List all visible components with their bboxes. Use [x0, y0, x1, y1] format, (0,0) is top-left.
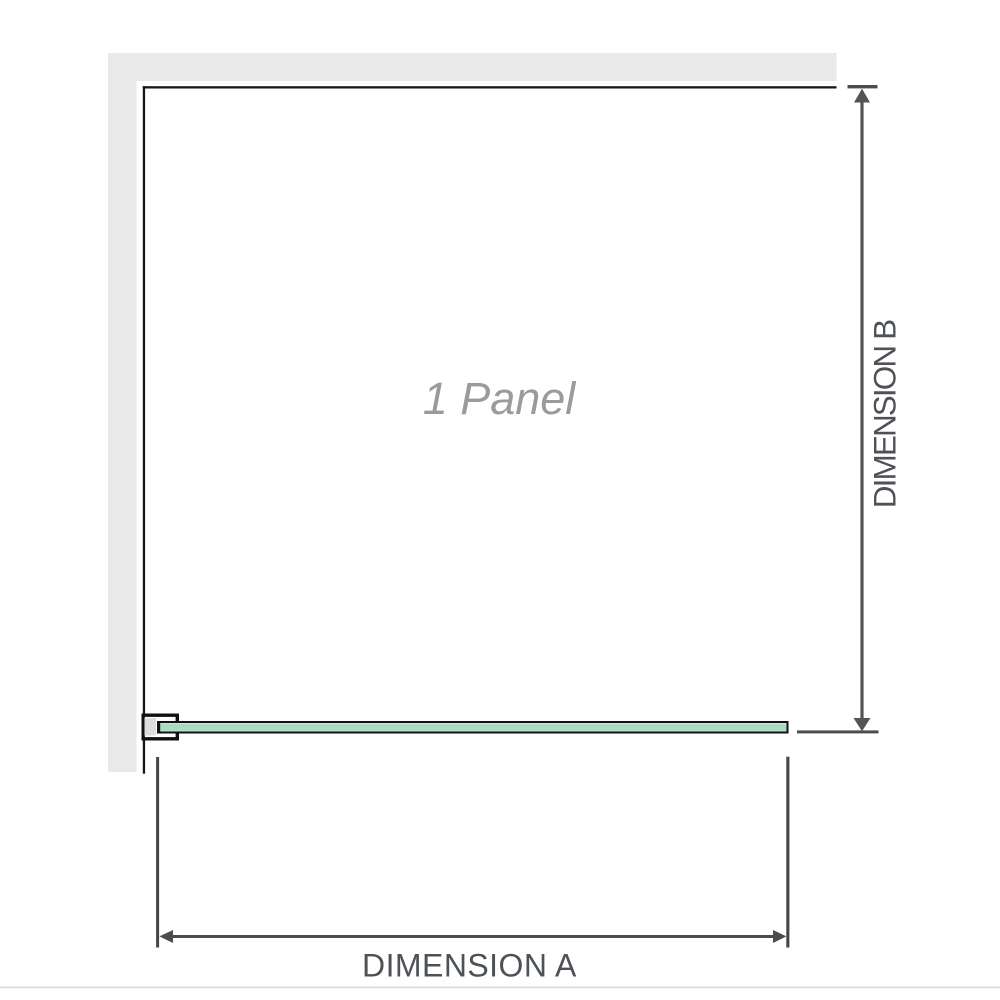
- svg-text:DIMENSION B: DIMENSION B: [867, 320, 903, 508]
- svg-text:DIMENSION A: DIMENSION A: [362, 947, 577, 983]
- svg-text:1 Panel: 1 Panel: [423, 373, 578, 424]
